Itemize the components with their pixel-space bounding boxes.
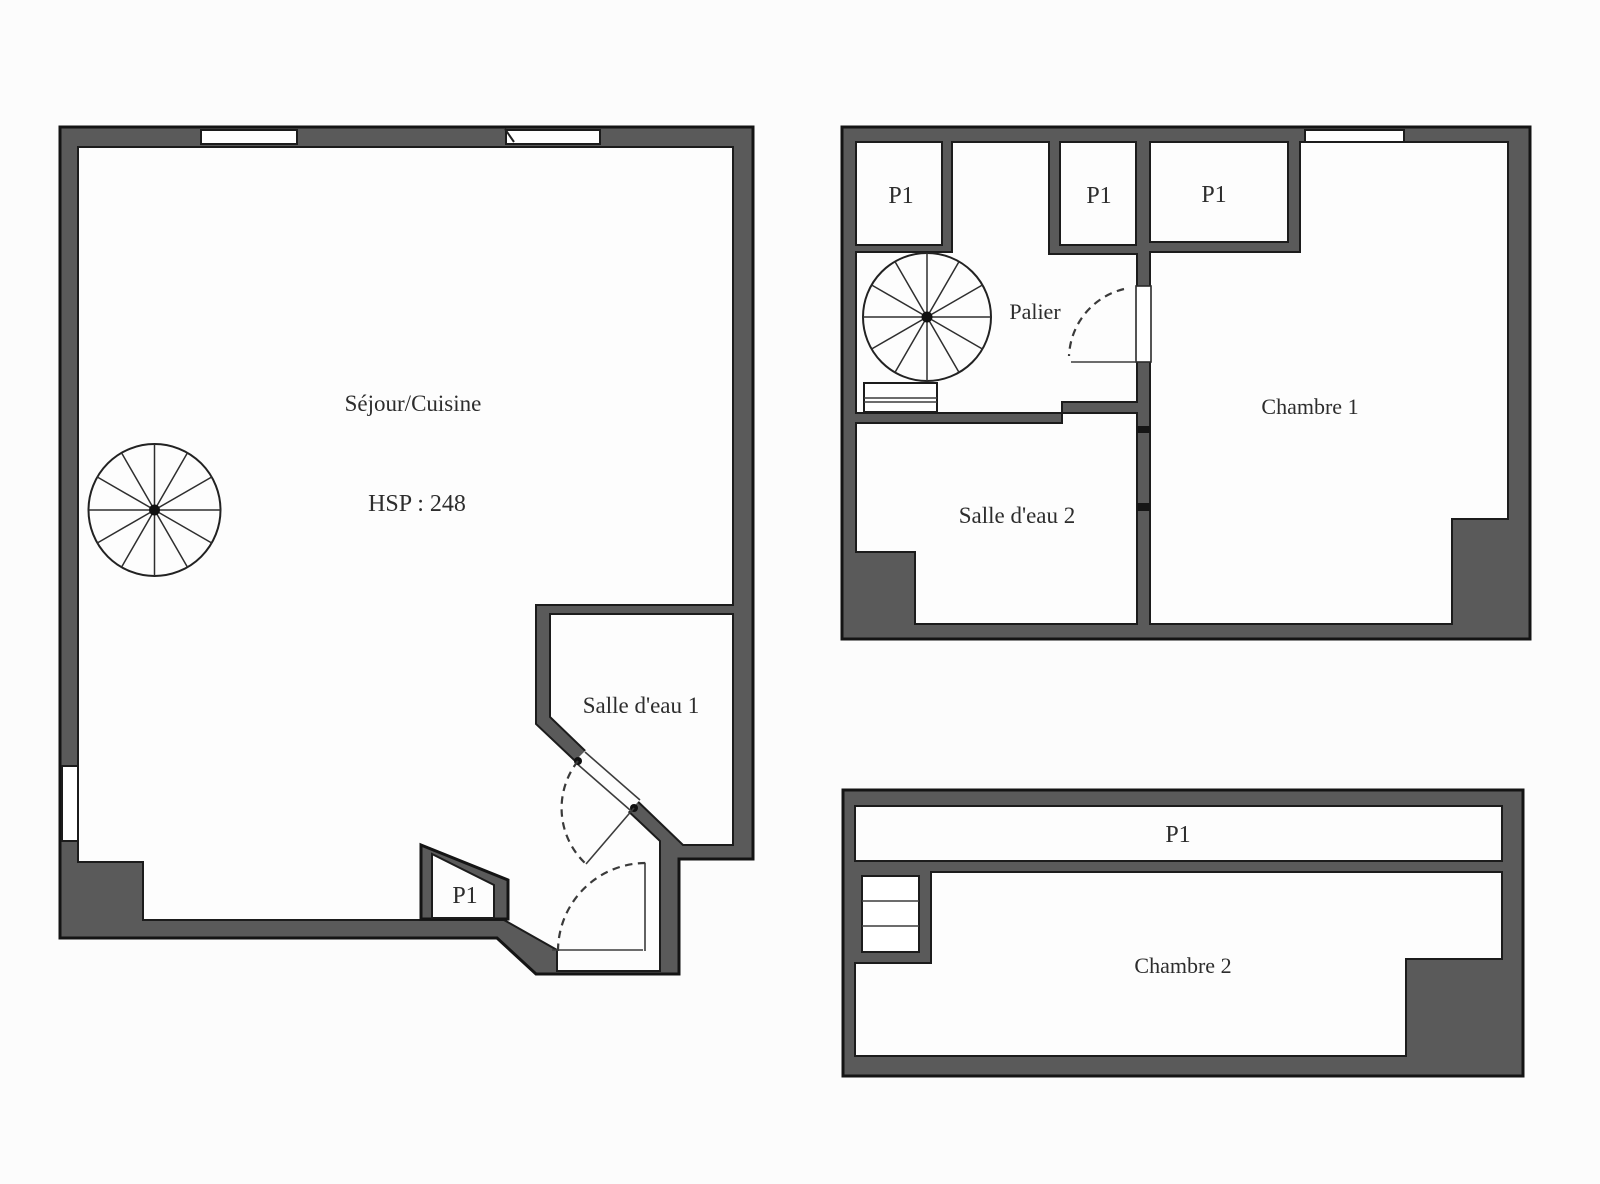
svg-text:Chambre 1: Chambre 1 bbox=[1261, 394, 1358, 419]
svg-text:Palier: Palier bbox=[1009, 299, 1061, 324]
svg-text:Salle d'eau 1: Salle d'eau 1 bbox=[583, 693, 700, 718]
svg-text:Séjour/Cuisine: Séjour/Cuisine bbox=[345, 391, 482, 416]
svg-text:P1: P1 bbox=[1086, 183, 1111, 209]
svg-text:HSP : 248: HSP : 248 bbox=[368, 491, 466, 517]
svg-text:P1: P1 bbox=[1201, 182, 1226, 208]
svg-text:Salle d'eau 2: Salle d'eau 2 bbox=[959, 503, 1076, 528]
svg-text:P1: P1 bbox=[1165, 822, 1190, 848]
svg-text:Chambre 2: Chambre 2 bbox=[1134, 953, 1231, 978]
svg-text:P1: P1 bbox=[888, 183, 913, 209]
svg-text:P1: P1 bbox=[452, 883, 477, 909]
